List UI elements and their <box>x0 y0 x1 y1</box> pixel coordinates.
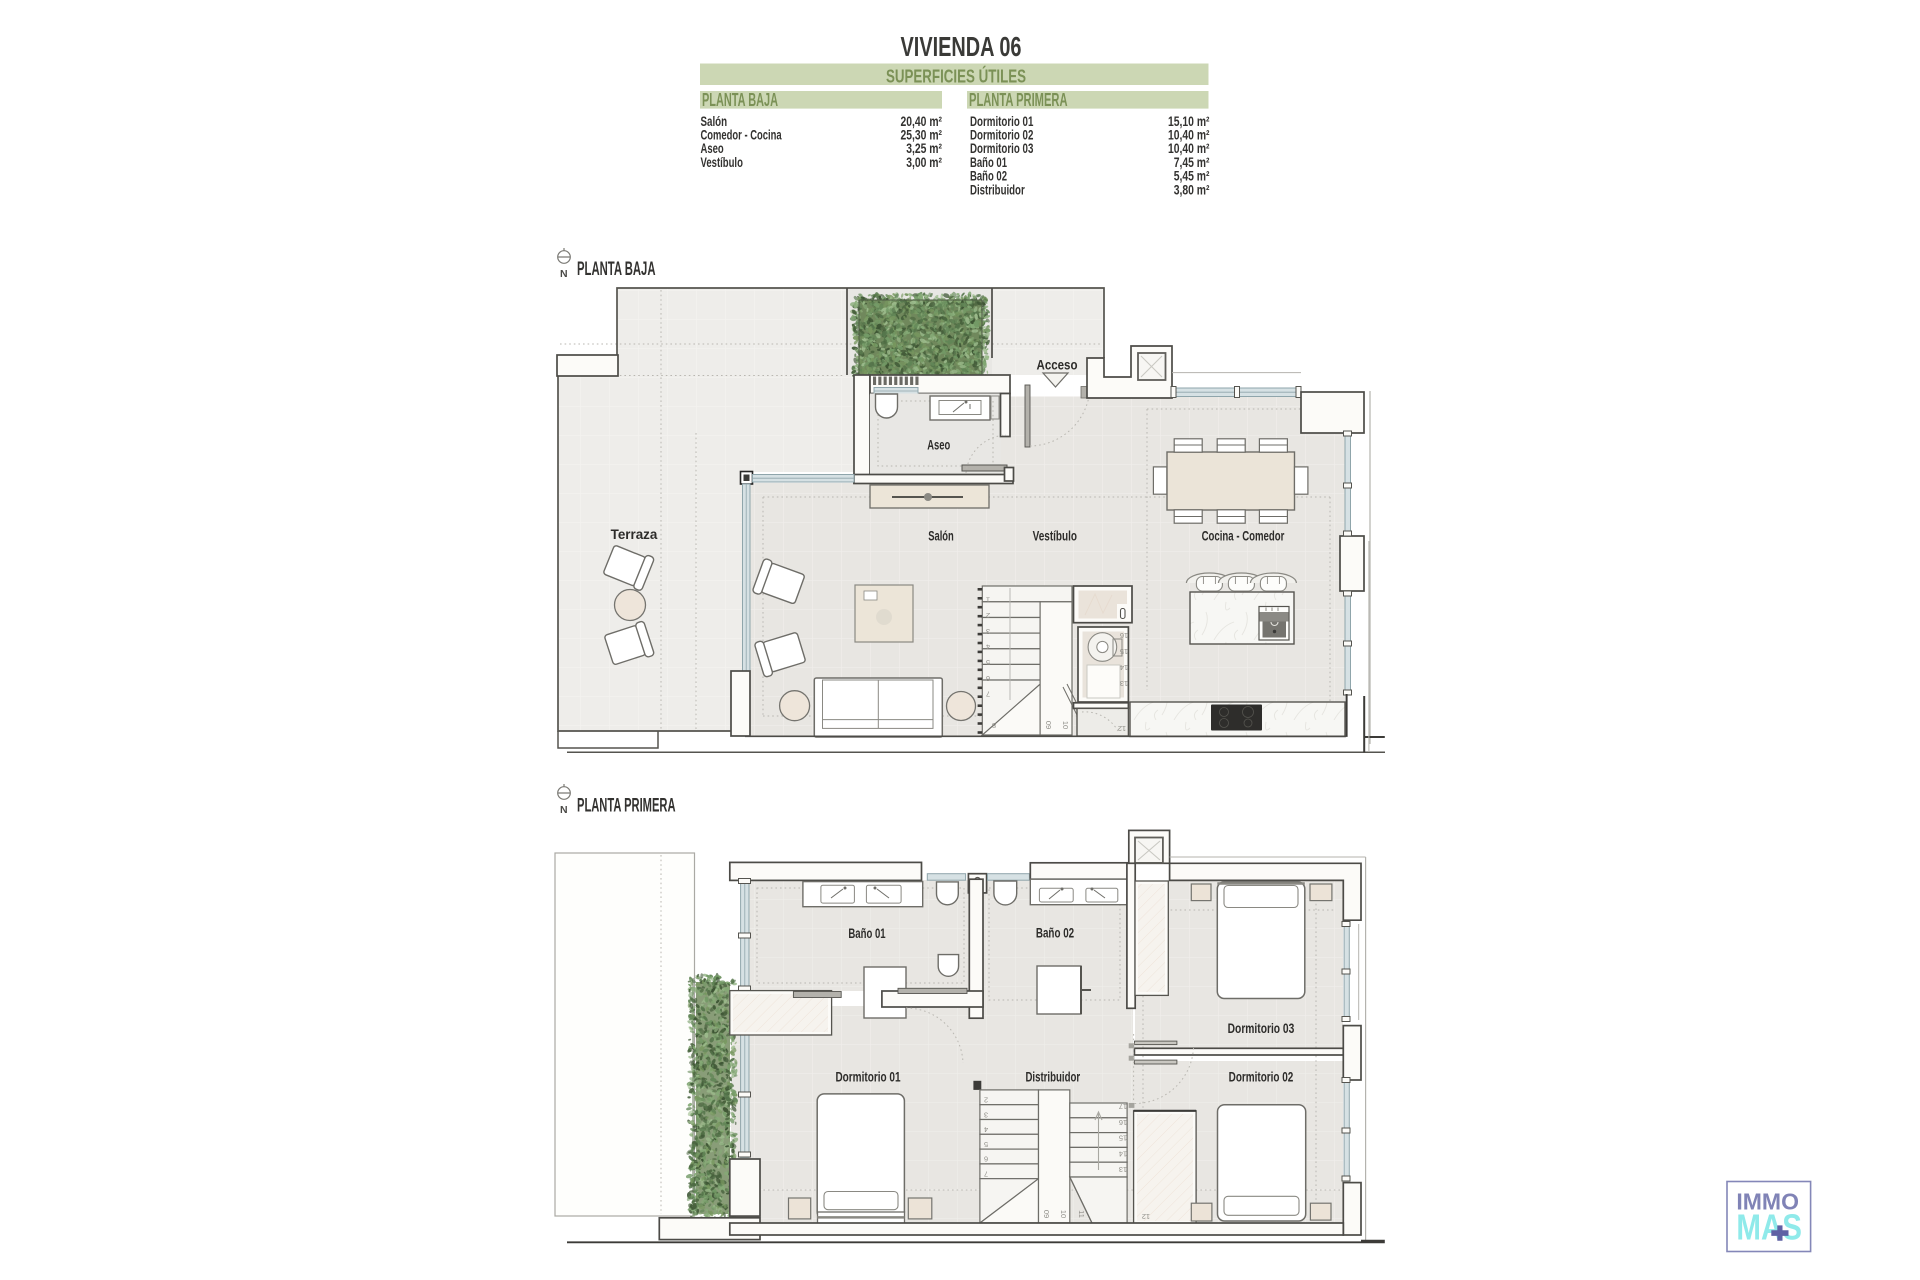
svg-text:16: 16 <box>1119 1118 1127 1127</box>
svg-text:10: 10 <box>1061 721 1070 729</box>
svg-text:2: 2 <box>986 611 990 620</box>
svg-text:17: 17 <box>1119 1102 1127 1111</box>
svg-text:12: 12 <box>1118 724 1126 733</box>
svg-text:PLANTA PRIMERA: PLANTA PRIMERA <box>577 796 676 817</box>
svg-text:Baño 01: Baño 01 <box>848 925 885 941</box>
svg-text:Distribuidor: Distribuidor <box>970 182 1025 197</box>
svg-text:Cocina - Comedor: Cocina - Comedor <box>1202 528 1285 544</box>
svg-text:Acceso: Acceso <box>1037 357 1078 373</box>
svg-text:Salón: Salón <box>928 528 954 544</box>
svg-text:PLANTA BAJA: PLANTA BAJA <box>577 259 656 280</box>
svg-text:3: 3 <box>986 627 990 636</box>
svg-text:3,00 m²: 3,00 m² <box>906 155 942 170</box>
svg-text:N: N <box>560 804 568 816</box>
svg-text:5: 5 <box>984 1140 988 1149</box>
svg-text:Distribuidor: Distribuidor <box>1025 1069 1080 1085</box>
svg-text:Dormitorio 03: Dormitorio 03 <box>1228 1020 1295 1036</box>
svg-text:1: 1 <box>986 596 990 605</box>
svg-text:VIVIENDA 06: VIVIENDA 06 <box>901 31 1022 62</box>
svg-text:3,80 m²: 3,80 m² <box>1174 182 1210 197</box>
svg-text:14: 14 <box>1120 663 1128 672</box>
svg-text:16: 16 <box>1120 631 1128 640</box>
svg-text:2: 2 <box>984 1096 988 1105</box>
svg-text:7: 7 <box>986 690 990 699</box>
svg-text:6: 6 <box>984 1155 988 1164</box>
svg-text:Baño 02: Baño 02 <box>1036 925 1074 941</box>
svg-text:09: 09 <box>1044 721 1053 729</box>
svg-text:3: 3 <box>984 1110 988 1119</box>
svg-text:15: 15 <box>1119 1134 1127 1143</box>
svg-text:6: 6 <box>986 674 990 683</box>
svg-text:Dormitorio 02: Dormitorio 02 <box>1229 1069 1294 1085</box>
svg-text:09: 09 <box>1042 1210 1051 1218</box>
svg-text:SUPERFICIES ÚTILES: SUPERFICIES ÚTILES <box>886 66 1026 87</box>
svg-text:PLANTA BAJA: PLANTA BAJA <box>702 90 778 110</box>
svg-text:12: 12 <box>1142 1212 1150 1221</box>
svg-text:Dormitorio 01: Dormitorio 01 <box>835 1069 900 1085</box>
svg-text:Aseo: Aseo <box>927 437 950 453</box>
svg-text:8: 8 <box>992 721 996 730</box>
svg-text:7: 7 <box>984 1170 988 1179</box>
svg-text:5: 5 <box>986 658 990 667</box>
svg-text:4: 4 <box>984 1125 988 1134</box>
svg-text:13: 13 <box>1119 1165 1127 1174</box>
svg-text:Vestíbulo: Vestíbulo <box>701 155 743 170</box>
svg-text:PLANTA PRIMERA: PLANTA PRIMERA <box>969 90 1068 110</box>
svg-text:11: 11 <box>1077 1210 1086 1218</box>
svg-text:Vestíbulo: Vestíbulo <box>1033 528 1077 544</box>
svg-text:14: 14 <box>1119 1149 1127 1158</box>
svg-text:Terraza: Terraza <box>611 526 658 542</box>
svg-text:15: 15 <box>1120 647 1128 656</box>
svg-text:13: 13 <box>1120 679 1128 688</box>
svg-text:MAS: MAS <box>1736 1207 1802 1248</box>
svg-text:10: 10 <box>1059 1210 1068 1218</box>
svg-text:N: N <box>560 268 568 280</box>
svg-text:4: 4 <box>986 643 990 652</box>
